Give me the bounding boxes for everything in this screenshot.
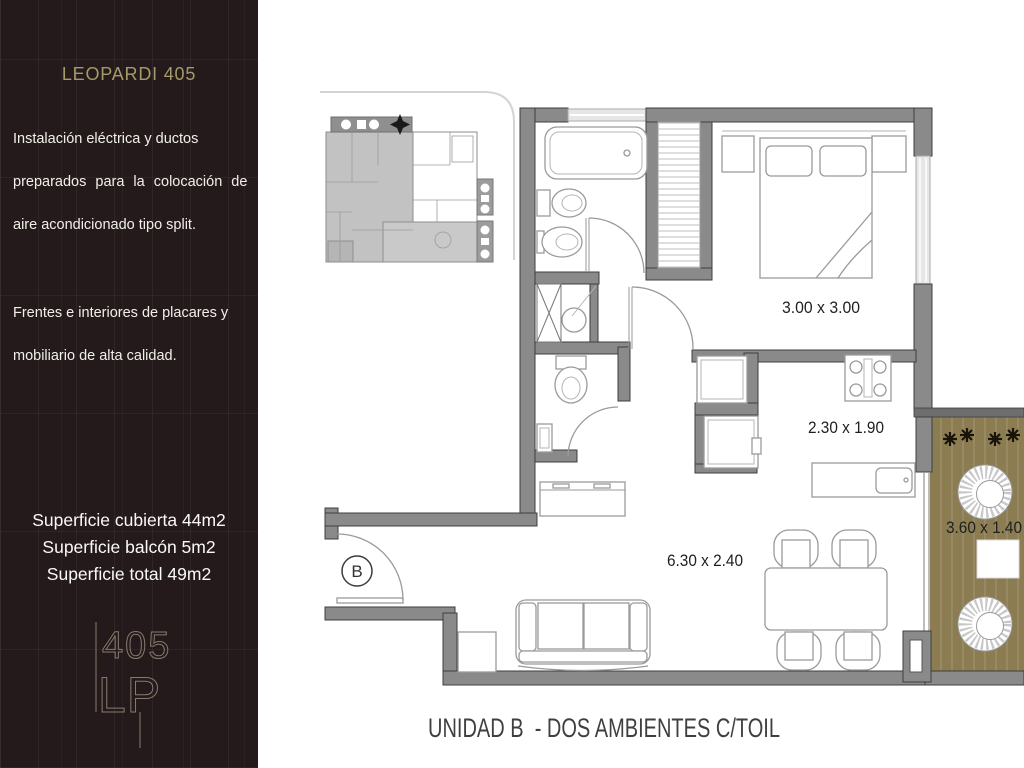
balcony: 3.60 x 1.40 bbox=[930, 412, 1024, 673]
toilet bbox=[537, 190, 550, 216]
kitchen-dimension-label: 2.30 x 1.90 bbox=[808, 418, 884, 437]
dining-chair bbox=[832, 530, 876, 568]
unit-label: B bbox=[351, 562, 362, 581]
laundry bbox=[537, 284, 596, 342]
overview-unit-b bbox=[413, 132, 477, 222]
sideboard bbox=[540, 482, 625, 516]
vent-shaft bbox=[658, 122, 700, 268]
laundry-sink bbox=[562, 308, 586, 332]
toilette bbox=[537, 356, 618, 456]
overview-floorplan bbox=[326, 114, 493, 262]
bathroom-door-arc bbox=[589, 218, 644, 273]
entry-door-leaf bbox=[337, 598, 403, 603]
side-table bbox=[458, 632, 496, 672]
plant-icon bbox=[1006, 428, 1020, 442]
dining-chair bbox=[774, 530, 818, 568]
plant-icon bbox=[943, 432, 957, 446]
living-dimension-label: 6.30 x 2.40 bbox=[667, 551, 743, 570]
kitchen-appliance bbox=[704, 416, 758, 468]
bedroom-dimension-label: 3.00 x 3.00 bbox=[782, 298, 860, 317]
living-dining: 6.30 x 2.40 bbox=[458, 530, 887, 672]
refrigerator bbox=[697, 356, 747, 403]
sofa bbox=[516, 600, 650, 671]
kitchen: 2.30 x 1.90 bbox=[697, 355, 915, 497]
balcony-table bbox=[977, 540, 1019, 578]
dining-chair bbox=[777, 632, 821, 670]
bathtub bbox=[545, 127, 647, 179]
bathroom bbox=[537, 127, 647, 273]
pillow bbox=[820, 146, 866, 176]
entrance: B bbox=[337, 534, 403, 603]
unit-caption: UNIDAD B - DOS AMBIENTES C/TOIL bbox=[428, 713, 780, 743]
plant-icon bbox=[988, 432, 1002, 446]
overview-terrace bbox=[383, 222, 477, 262]
toilette-door-arc bbox=[568, 407, 618, 456]
floorplan-canvas: 3.60 x 1.40 bbox=[0, 0, 1024, 768]
balcony-chair bbox=[958, 597, 1012, 651]
balcony-dimension-label: 3.60 x 1.40 bbox=[946, 518, 1022, 537]
nightstand bbox=[722, 136, 754, 172]
bedroom-door-arc bbox=[632, 287, 693, 349]
plant-icon bbox=[960, 428, 974, 442]
dining-table bbox=[765, 568, 887, 630]
nightstand bbox=[872, 136, 906, 172]
dining-chair bbox=[836, 632, 880, 670]
brochure-page: LEOPARDI 405 Instalación eléctrica y duc… bbox=[0, 0, 1024, 768]
pillow bbox=[766, 146, 812, 176]
overview-annex bbox=[328, 241, 353, 262]
balcony-chair bbox=[958, 465, 1012, 519]
